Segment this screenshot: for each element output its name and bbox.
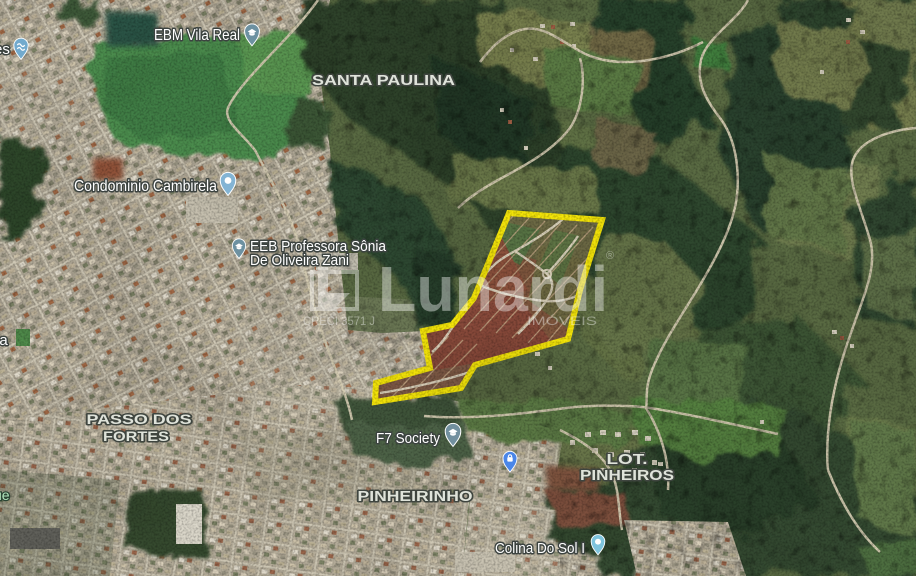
svg-text:SANTA PAULINA: SANTA PAULINA [312, 72, 455, 89]
svg-text:es: es [0, 41, 10, 58]
svg-text:Colina Do Sol I: Colina Do Sol I [495, 540, 585, 557]
svg-text:CRECI 3571 J: CRECI 3571 J [303, 314, 375, 328]
svg-text:F7 Society: F7 Society [376, 430, 440, 447]
svg-text:LOT.: LOT. [607, 451, 648, 468]
svg-text:FORTES: FORTES [103, 428, 169, 444]
svg-text:IMÓVEIS: IMÓVEIS [527, 313, 597, 328]
svg-text:PINHEIRINHO: PINHEIRINHO [358, 488, 473, 505]
svg-text:PINHEIROS: PINHEIROS [580, 467, 674, 484]
svg-text:PASSO DOS: PASSO DOS [87, 411, 192, 427]
svg-text:EBM Vila Real: EBM Vila Real [154, 27, 240, 44]
svg-text:ia: ia [0, 332, 8, 349]
svg-text:ue: ue [0, 487, 10, 503]
svg-text:De Oliveira Zani: De Oliveira Zani [250, 252, 349, 269]
svg-text:Condominio Cambirela: Condominio Cambirela [74, 178, 217, 195]
svg-text:®: ® [606, 250, 614, 262]
